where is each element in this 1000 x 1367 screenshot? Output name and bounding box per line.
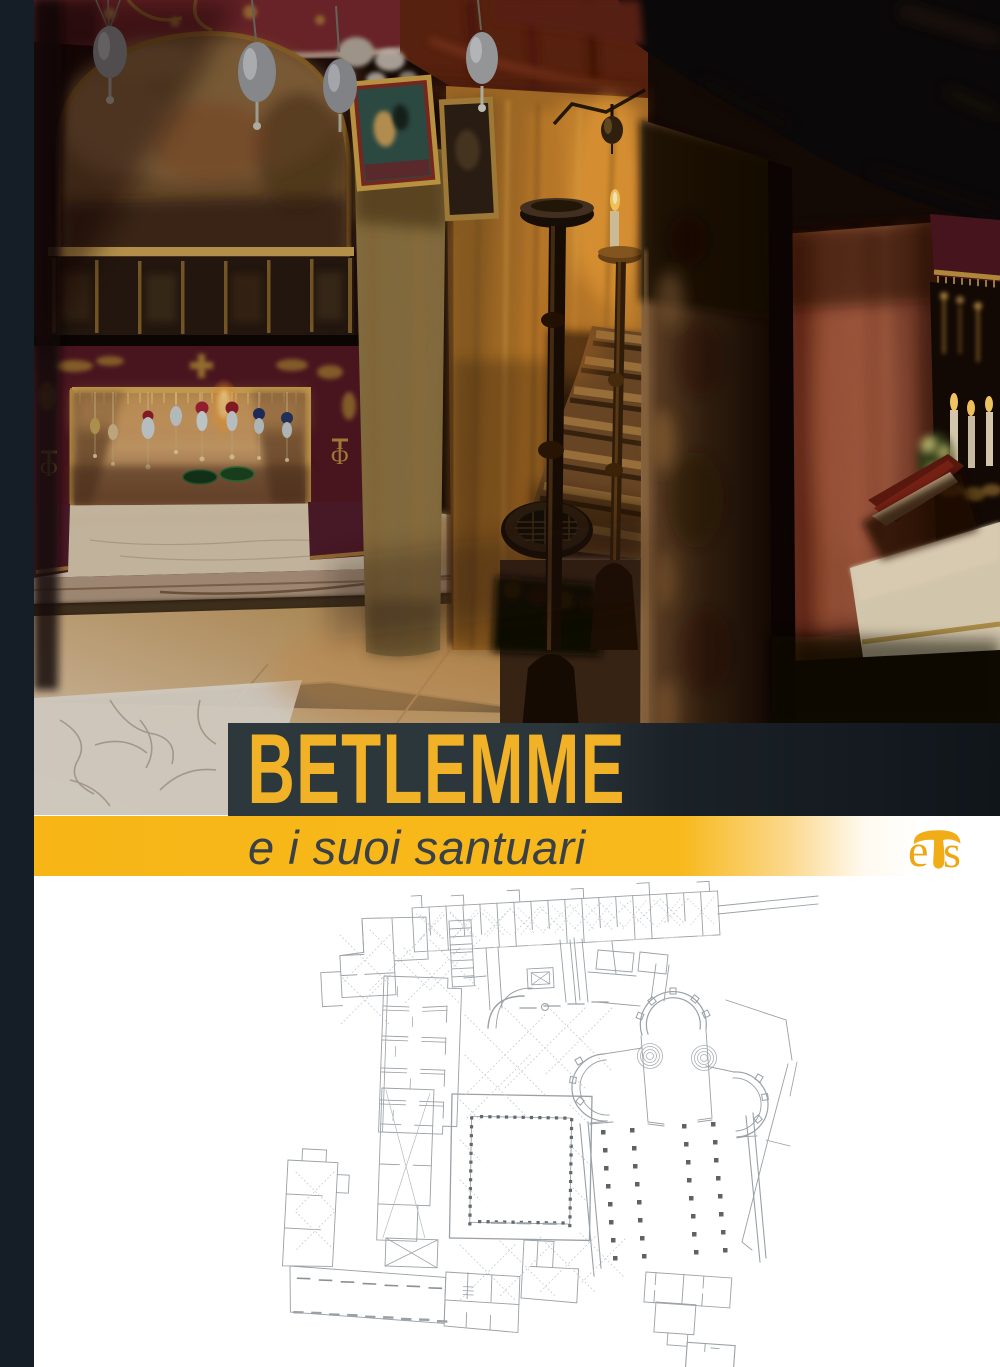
svg-text:BETLEMME: BETLEMME: [248, 713, 626, 824]
svg-text:s: s: [943, 826, 961, 877]
svg-text:e i suoi santuari: e i suoi santuari: [248, 821, 587, 874]
svg-text:e: e: [908, 825, 928, 876]
